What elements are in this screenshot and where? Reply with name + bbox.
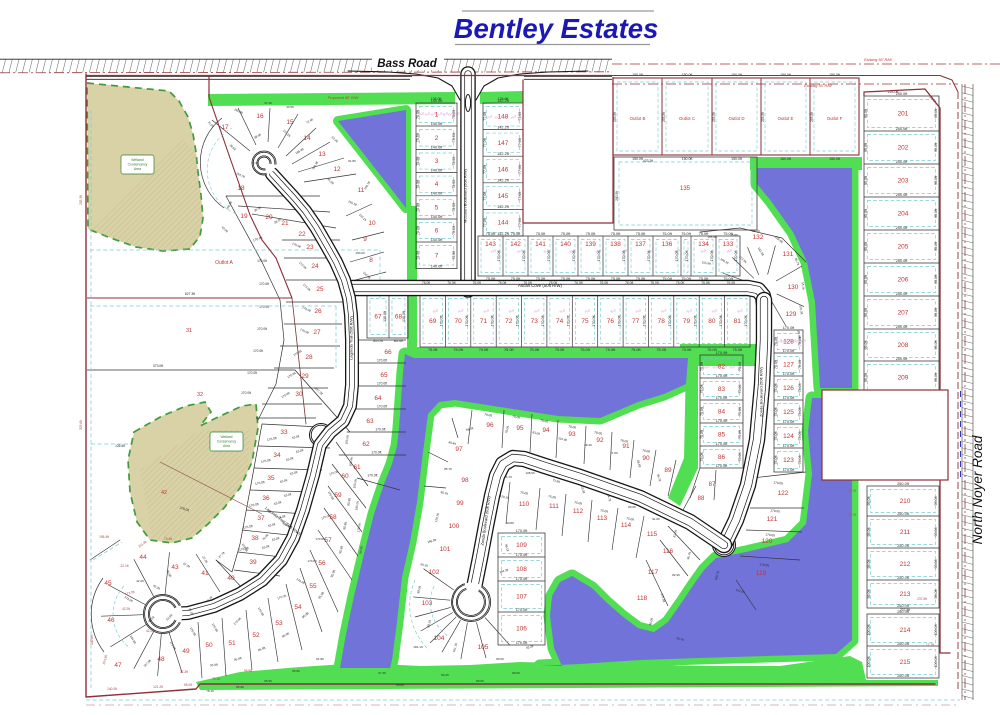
svg-text:75.0ft: 75.0ft	[529, 348, 539, 352]
svg-text:250.0ft: 250.0ft	[897, 512, 910, 516]
svg-text:44: 44	[139, 554, 147, 561]
svg-text:142: 142	[510, 241, 521, 248]
svg-text:95.0ft: 95.0ft	[934, 209, 938, 218]
svg-text:126: 126	[783, 385, 794, 392]
svg-text:142.2ft: 142.2ft	[497, 232, 510, 236]
svg-text:95.0ft: 95.0ft	[934, 275, 938, 284]
svg-text:170.0ft: 170.0ft	[643, 316, 647, 327]
svg-text:42.2ft: 42.2ft	[136, 579, 144, 583]
svg-text:Lagonda Trail (50ft R/W): Lagonda Trail (50ft R/W)	[349, 316, 354, 360]
svg-text:213: 213	[900, 591, 911, 598]
svg-text:75.0ft: 75.0ft	[555, 348, 565, 352]
svg-text:137: 137	[635, 241, 646, 248]
svg-text:140.0ft: 140.0ft	[431, 264, 444, 268]
svg-text:42.2ft: 42.2ft	[146, 629, 154, 633]
svg-text:147: 147	[498, 140, 509, 147]
svg-text:170.0ft: 170.0ft	[253, 349, 263, 353]
svg-text:77.0ft: 77.0ft	[518, 218, 522, 227]
svg-text:65.0ft: 65.0ft	[396, 683, 404, 687]
svg-text:73.4ft: 73.4ft	[164, 537, 172, 541]
svg-text:98: 98	[461, 477, 469, 484]
svg-text:145: 145	[498, 193, 509, 200]
svg-text:170.0ft: 170.0ft	[685, 251, 689, 262]
svg-text:95.9ft: 95.9ft	[292, 669, 300, 673]
svg-text:76.0ft: 76.0ft	[523, 281, 531, 285]
svg-text:76.0ft: 76.0ft	[574, 281, 582, 285]
svg-text:95.0ft: 95.0ft	[934, 176, 938, 185]
svg-text:76.0ft: 76.0ft	[498, 281, 506, 285]
svg-text:170.0ft: 170.0ft	[259, 282, 269, 286]
svg-text:95.0ft: 95.0ft	[864, 242, 868, 251]
svg-text:76.0ft: 76.0ft	[422, 281, 430, 285]
svg-text:207: 207	[898, 310, 909, 317]
svg-text:133: 133	[723, 241, 734, 248]
svg-text:42.2ft: 42.2ft	[122, 607, 130, 611]
svg-text:140.0ft: 140.0ft	[431, 192, 444, 196]
svg-text:71.5ft: 71.5ft	[610, 451, 618, 455]
svg-text:North Noyer Road: North Noyer Road	[970, 435, 985, 544]
svg-text:Conservancy: Conservancy	[217, 440, 237, 444]
svg-text:253.5ft: 253.5ft	[662, 112, 666, 122]
svg-text:127: 127	[783, 362, 794, 369]
svg-text:170.0ft: 170.0ft	[371, 451, 381, 455]
svg-text:95.7ft: 95.7ft	[801, 282, 806, 290]
svg-text:170.0ft: 170.0ft	[783, 444, 796, 448]
svg-text:76.0ft: 76.0ft	[625, 281, 633, 285]
svg-text:75.0ft: 75.0ft	[453, 348, 463, 352]
svg-text:75.0ft: 75.0ft	[798, 432, 802, 441]
svg-text:38: 38	[251, 535, 259, 542]
svg-text:37.3ft: 37.3ft	[264, 101, 272, 105]
svg-text:170.0ft: 170.0ft	[516, 577, 529, 581]
svg-text:5: 5	[435, 204, 439, 211]
svg-text:88: 88	[698, 496, 705, 502]
svg-text:170.0ft: 170.0ft	[592, 316, 596, 327]
svg-text:10: 10	[368, 220, 376, 227]
svg-text:83: 83	[718, 386, 726, 393]
svg-text:75.0ft: 75.0ft	[580, 348, 590, 352]
svg-text:76.0ft: 76.0ft	[727, 281, 735, 285]
svg-text:75.0ft: 75.0ft	[774, 408, 778, 417]
svg-text:209: 209	[898, 375, 909, 382]
svg-text:170.0ft: 170.0ft	[377, 405, 387, 409]
svg-text:7: 7	[435, 252, 439, 259]
svg-text:140: 140	[560, 241, 571, 248]
svg-text:33: 33	[280, 429, 288, 436]
svg-text:13: 13	[318, 151, 326, 158]
svg-text:16.7ft: 16.7ft	[504, 475, 512, 479]
svg-text:75.5ft: 75.5ft	[452, 133, 456, 142]
svg-text:62: 62	[362, 441, 370, 448]
svg-text:250.0ft: 250.0ft	[896, 160, 909, 164]
svg-text:75.0ft: 75.0ft	[511, 232, 521, 236]
svg-text:95.0ft: 95.0ft	[934, 308, 938, 317]
svg-text:103: 103	[422, 600, 433, 607]
svg-text:170.0ft: 170.0ft	[490, 316, 494, 327]
svg-text:8: 8	[369, 257, 373, 264]
svg-text:95.9ft: 95.9ft	[236, 685, 244, 689]
svg-text:75.5ft: 75.5ft	[452, 203, 456, 212]
svg-text:200.5ft: 200.5ft	[615, 191, 619, 201]
svg-text:17.7ft: 17.7ft	[848, 513, 856, 517]
svg-text:119: 119	[756, 570, 767, 577]
svg-text:27: 27	[313, 329, 321, 336]
svg-text:96: 96	[486, 422, 494, 429]
svg-text:129: 129	[786, 311, 797, 318]
svg-text:170.0ft: 170.0ft	[315, 537, 324, 541]
svg-text:93: 93	[568, 431, 576, 438]
svg-text:70: 70	[454, 318, 462, 325]
svg-text:170.0ft: 170.0ft	[783, 468, 796, 472]
svg-text:86: 86	[718, 454, 726, 461]
svg-text:150.0ft: 150.0ft	[829, 157, 840, 161]
svg-text:206: 206	[898, 277, 909, 284]
svg-text:85: 85	[718, 432, 726, 439]
svg-text:423.2ft: 423.2ft	[643, 159, 653, 163]
svg-text:6: 6	[435, 228, 439, 235]
svg-text:75.5ft: 75.5ft	[452, 157, 456, 166]
svg-text:138.0ft: 138.0ft	[402, 311, 406, 322]
svg-text:170.0ft: 170.0ft	[567, 316, 571, 327]
svg-text:49: 49	[182, 648, 190, 655]
svg-text:122: 122	[778, 490, 789, 497]
svg-text:170.0ft: 170.0ft	[307, 559, 316, 563]
svg-text:53: 53	[275, 620, 283, 627]
svg-text:17: 17	[221, 124, 229, 131]
svg-text:146: 146	[498, 167, 509, 174]
svg-text:66: 66	[384, 349, 392, 356]
svg-text:47: 47	[114, 662, 122, 669]
svg-text:170.0ft: 170.0ft	[710, 251, 714, 262]
svg-text:75.0ft: 75.0ft	[774, 456, 778, 465]
svg-text:91: 91	[622, 443, 630, 450]
svg-text:181.1ft: 181.1ft	[413, 645, 423, 649]
svg-text:75.5ft: 75.5ft	[452, 251, 456, 260]
svg-text:43.5ft: 43.5ft	[286, 105, 294, 109]
svg-text:75.5ft: 75.5ft	[416, 180, 420, 189]
svg-text:95.0ft: 95.0ft	[934, 143, 938, 152]
svg-text:46: 46	[107, 617, 115, 624]
svg-text:76.0ft: 76.0ft	[701, 281, 709, 285]
svg-text:75.0ft: 75.0ft	[700, 407, 704, 416]
svg-text:95: 95	[516, 425, 524, 432]
svg-text:89.0ft: 89.0ft	[496, 657, 504, 661]
svg-text:71: 71	[480, 318, 488, 325]
svg-text:113: 113	[597, 515, 608, 522]
svg-text:77.0ft: 77.0ft	[518, 192, 522, 201]
svg-text:76.0ft: 76.0ft	[473, 281, 481, 285]
svg-text:77.0ft: 77.0ft	[483, 192, 487, 201]
svg-text:89: 89	[664, 467, 672, 474]
svg-text:170.0ft: 170.0ft	[716, 419, 729, 423]
svg-text:Outlot E: Outlot E	[778, 116, 794, 121]
svg-text:12: 12	[333, 166, 341, 173]
svg-text:75.0ft: 75.0ft	[561, 232, 571, 236]
svg-text:36: 36	[262, 495, 270, 502]
svg-text:212: 212	[900, 561, 911, 568]
svg-text:75.5ft: 75.5ft	[416, 157, 420, 166]
svg-text:170.0ft: 170.0ft	[465, 316, 469, 327]
svg-text:17.7ft: 17.7ft	[926, 643, 934, 647]
svg-text:75.0ft: 75.0ft	[606, 348, 616, 352]
svg-text:128.0ft: 128.0ft	[431, 97, 442, 101]
svg-text:214: 214	[900, 627, 911, 634]
svg-text:170.0ft: 170.0ft	[617, 316, 621, 327]
svg-text:63: 63	[366, 418, 374, 425]
svg-text:121.2ft: 121.2ft	[153, 685, 163, 689]
svg-text:100: 100	[449, 523, 460, 530]
svg-text:150.0ft: 150.0ft	[731, 157, 742, 161]
svg-text:95.0ft: 95.0ft	[867, 560, 871, 569]
svg-text:250.0ft: 250.0ft	[896, 127, 909, 131]
svg-text:76.0ft: 76.0ft	[549, 281, 557, 285]
svg-text:89.0ft: 89.0ft	[476, 679, 484, 683]
svg-text:77.0ft: 77.0ft	[483, 218, 487, 227]
svg-text:134: 134	[698, 241, 709, 248]
svg-text:21: 21	[281, 220, 289, 227]
svg-text:Proposed 60' R/W: Proposed 60' R/W	[328, 96, 359, 100]
svg-text:55: 55	[309, 583, 317, 590]
svg-text:170.0ft: 170.0ft	[719, 316, 723, 327]
svg-text:202: 202	[898, 145, 909, 152]
svg-text:373.0ft: 373.0ft	[153, 364, 163, 368]
svg-text:28: 28	[305, 354, 313, 361]
svg-text:126.6ft: 126.6ft	[115, 444, 125, 448]
svg-text:78: 78	[658, 318, 666, 325]
svg-text:170.0ft: 170.0ft	[375, 428, 385, 432]
svg-text:170.0ft: 170.0ft	[241, 391, 251, 395]
svg-text:24: 24	[311, 263, 319, 270]
svg-text:22: 22	[298, 231, 306, 238]
svg-text:75.0ft: 75.0ft	[682, 348, 692, 352]
svg-text:204: 204	[898, 211, 909, 218]
svg-text:95.0ft: 95.0ft	[934, 528, 938, 537]
svg-text:109: 109	[516, 542, 527, 549]
svg-text:Outlot B: Outlot B	[630, 116, 646, 121]
svg-text:74: 74	[556, 318, 564, 325]
svg-text:75.5ft: 75.5ft	[452, 226, 456, 235]
svg-text:76.0ft: 76.0ft	[600, 281, 608, 285]
svg-text:75.0ft: 75.0ft	[733, 348, 743, 352]
svg-text:170.0ft: 170.0ft	[541, 316, 545, 327]
svg-text:65.0ft: 65.0ft	[184, 683, 192, 687]
svg-text:95.0ft: 95.0ft	[864, 275, 868, 284]
svg-text:140.0ft: 140.0ft	[431, 145, 444, 149]
svg-text:120: 120	[762, 538, 773, 545]
svg-text:170.0ft: 170.0ft	[247, 371, 257, 375]
svg-text:143: 143	[485, 241, 496, 248]
svg-text:Outlot D: Outlot D	[728, 116, 744, 121]
svg-text:150.0ft: 150.0ft	[632, 157, 643, 161]
svg-text:95.0ft: 95.0ft	[934, 497, 938, 506]
svg-text:60: 60	[341, 473, 349, 480]
svg-text:211: 211	[900, 529, 911, 536]
svg-text:30: 30	[295, 391, 303, 398]
svg-text:31: 31	[186, 328, 192, 334]
svg-text:35: 35	[267, 475, 275, 482]
svg-text:77.0ft: 77.0ft	[483, 138, 487, 147]
svg-text:-22.1ft: -22.1ft	[119, 564, 128, 568]
svg-text:130: 130	[788, 284, 799, 291]
svg-text:75.0ft: 75.0ft	[656, 348, 666, 352]
svg-text:140.0ft: 140.0ft	[431, 168, 444, 172]
svg-text:37.3ft: 37.3ft	[180, 670, 188, 674]
svg-text:107: 107	[516, 594, 527, 601]
svg-text:75.0ft: 75.0ft	[700, 453, 704, 462]
svg-text:75.0ft: 75.0ft	[700, 385, 704, 394]
svg-text:250.0ft: 250.0ft	[896, 357, 909, 361]
svg-text:54: 54	[294, 604, 302, 611]
svg-text:2: 2	[435, 135, 439, 142]
svg-text:26: 26	[314, 308, 322, 315]
svg-text:170.0ft: 170.0ft	[783, 396, 796, 400]
svg-text:75.8ft: 75.8ft	[730, 233, 738, 237]
svg-text:95.0ft: 95.0ft	[867, 590, 871, 599]
svg-text:150.0ft: 150.0ft	[355, 251, 364, 255]
svg-text:95.0ft: 95.0ft	[864, 308, 868, 317]
svg-text:250.0ft: 250.0ft	[896, 226, 909, 230]
svg-text:McLaren Boulevard (50ft R/W): McLaren Boulevard (50ft R/W)	[463, 168, 468, 223]
svg-text:3: 3	[435, 158, 439, 165]
svg-text:140.0ft: 140.0ft	[431, 238, 444, 242]
svg-text:Conservancy: Conservancy	[128, 163, 148, 167]
svg-text:75.0ft: 75.0ft	[479, 348, 489, 352]
svg-text:35.2ft: 35.2ft	[752, 229, 760, 233]
svg-text:208: 208	[898, 342, 909, 349]
svg-text:170.0ft: 170.0ft	[716, 464, 729, 468]
svg-text:16: 16	[256, 113, 264, 120]
svg-text:155.9ft: 155.9ft	[707, 235, 716, 239]
svg-text:Zonda Boulevard (50ft R/W): Zonda Boulevard (50ft R/W)	[759, 366, 764, 416]
svg-text:Bass Road: Bass Road	[377, 58, 437, 70]
svg-text:37.3ft: 37.3ft	[378, 671, 386, 675]
svg-text:111: 111	[549, 503, 559, 510]
svg-text:135: 135	[680, 186, 691, 192]
svg-text:170.0ft: 170.0ft	[516, 608, 529, 612]
svg-text:250.0ft: 250.0ft	[897, 482, 910, 486]
svg-text:75.0ft: 75.0ft	[631, 348, 641, 352]
svg-text:170.0ft: 170.0ft	[783, 349, 796, 353]
svg-text:170.0ft: 170.0ft	[377, 359, 387, 363]
svg-text:139: 139	[585, 241, 596, 248]
svg-text:170.0ft: 170.0ft	[257, 327, 267, 331]
svg-text:150.0ft: 150.0ft	[780, 157, 791, 161]
svg-text:250.0ft: 250.0ft	[897, 642, 910, 646]
svg-text:51: 51	[228, 640, 236, 647]
svg-text:170.0ft: 170.0ft	[744, 316, 748, 327]
svg-text:80: 80	[708, 318, 716, 325]
svg-text:75.0ft: 75.0ft	[428, 348, 438, 352]
svg-text:Wetland: Wetland	[131, 158, 143, 162]
svg-text:170.0ft: 170.0ft	[716, 374, 729, 378]
svg-text:84: 84	[718, 409, 726, 416]
svg-text:77.0ft: 77.0ft	[518, 138, 522, 147]
svg-text:99: 99	[456, 500, 464, 507]
svg-text:115: 115	[647, 531, 658, 538]
svg-text:203: 203	[898, 178, 909, 185]
svg-text:Bentley Estates: Bentley Estates	[454, 13, 659, 44]
svg-text:215: 215	[900, 659, 911, 666]
svg-text:Area: Area	[223, 444, 230, 448]
svg-text:76.0ft: 76.0ft	[650, 281, 658, 285]
svg-text:69: 69	[429, 318, 437, 325]
svg-text:Existing 50' R/W: Existing 50' R/W	[864, 58, 892, 62]
svg-text:95.0ft: 95.0ft	[864, 209, 868, 218]
svg-text:91.8ft: 91.8ft	[348, 159, 356, 163]
svg-text:170.0ft: 170.0ft	[716, 351, 729, 355]
svg-text:136: 136	[662, 241, 673, 248]
svg-text:43: 43	[171, 564, 179, 571]
svg-text:80.0ft: 80.0ft	[628, 505, 636, 509]
svg-text:142.2ft: 142.2ft	[497, 179, 510, 183]
svg-text:72.4ft: 72.4ft	[251, 161, 259, 165]
svg-text:170.0ft: 170.0ft	[497, 251, 501, 262]
svg-text:76.0ft: 76.0ft	[676, 281, 684, 285]
svg-text:250.0ft: 250.0ft	[897, 544, 910, 548]
svg-text:Outlot C: Outlot C	[679, 116, 695, 121]
svg-text:112: 112	[573, 508, 584, 515]
svg-text:95.9ft: 95.9ft	[244, 669, 252, 673]
svg-text:170.0ft: 170.0ft	[516, 529, 529, 533]
svg-text:170.0ft: 170.0ft	[693, 316, 697, 327]
svg-text:95.0ft: 95.0ft	[864, 176, 868, 185]
svg-text:138.0ft: 138.0ft	[383, 311, 387, 322]
svg-text:75.0ft: 75.0ft	[504, 348, 514, 352]
svg-text:73: 73	[531, 318, 539, 325]
svg-text:77.0ft: 77.0ft	[483, 165, 487, 174]
svg-text:75.0ft: 75.0ft	[738, 385, 742, 394]
svg-text:205: 205	[898, 244, 909, 251]
svg-text:90: 90	[642, 455, 650, 462]
svg-text:75.0ft: 75.0ft	[611, 232, 621, 236]
svg-text:64: 64	[374, 395, 382, 402]
svg-text:77: 77	[632, 318, 640, 325]
svg-text:205.3ft: 205.3ft	[79, 195, 83, 205]
svg-text:4: 4	[435, 181, 439, 188]
svg-text:95.0ft: 95.0ft	[934, 341, 938, 350]
svg-text:95.0ft: 95.0ft	[867, 497, 871, 506]
svg-text:79: 79	[683, 318, 691, 325]
svg-text:75.5ft: 75.5ft	[416, 203, 420, 212]
svg-text:141: 141	[535, 241, 546, 248]
svg-text:95.0ft: 95.0ft	[934, 109, 938, 118]
svg-text:121: 121	[767, 516, 778, 523]
svg-text:132: 132	[753, 234, 764, 241]
svg-text:108.6ft: 108.6ft	[525, 471, 534, 475]
svg-text:142.2ft: 142.2ft	[497, 205, 510, 209]
svg-text:170.0ft: 170.0ft	[257, 259, 267, 263]
svg-text:Area: Area	[134, 167, 141, 171]
svg-text:131: 131	[783, 251, 794, 258]
svg-text:32: 32	[197, 392, 203, 398]
svg-text:Wetland: Wetland	[220, 435, 232, 439]
svg-text:75.0ft: 75.0ft	[798, 384, 802, 393]
svg-text:118: 118	[637, 595, 648, 602]
svg-text:75.0ft: 75.0ft	[681, 232, 691, 236]
svg-text:89.0ft: 89.0ft	[512, 671, 520, 675]
svg-text:95.0ft: 95.0ft	[864, 109, 868, 118]
svg-text:104: 104	[434, 635, 445, 642]
svg-text:76: 76	[607, 318, 615, 325]
svg-text:40.8ft: 40.8ft	[506, 521, 514, 525]
svg-text:142.2ft: 142.2ft	[497, 152, 510, 156]
svg-text:85.7ft: 85.7ft	[444, 467, 452, 471]
svg-text:75.0ft: 75.0ft	[774, 384, 778, 393]
svg-text:Existing 50' R/W: Existing 50' R/W	[804, 84, 832, 88]
svg-text:253.5ft: 253.5ft	[712, 112, 716, 122]
svg-text:170.0ft: 170.0ft	[783, 420, 796, 424]
svg-text:237.5ft: 237.5ft	[917, 597, 927, 601]
